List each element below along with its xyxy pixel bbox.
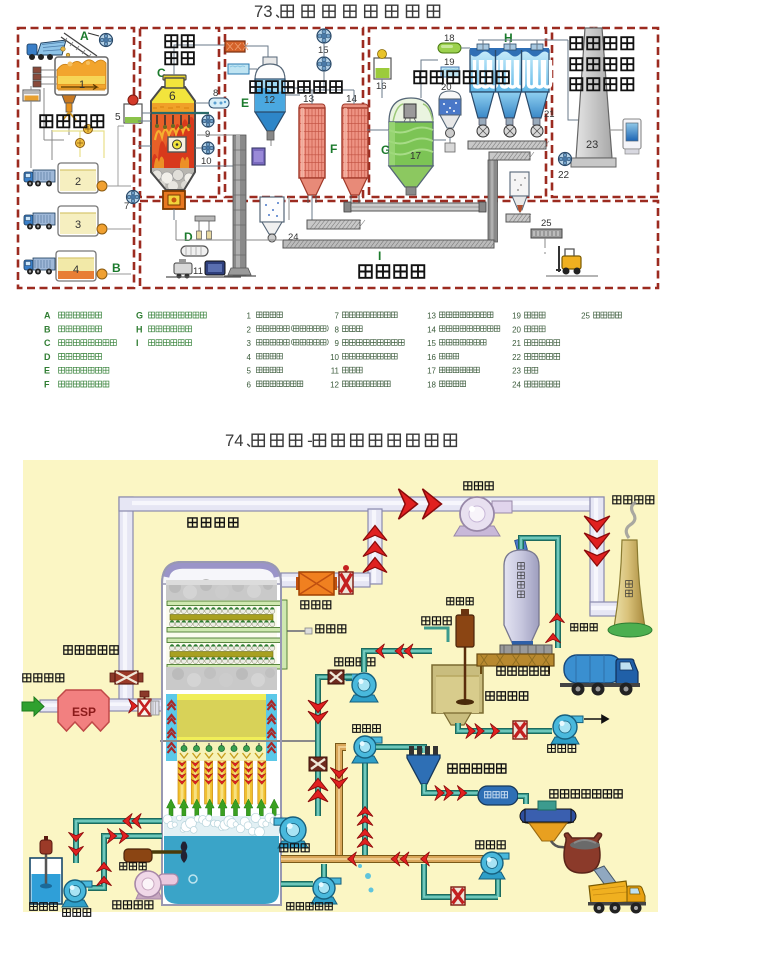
svg-text:5: 5 xyxy=(247,367,252,376)
svg-text:15: 15 xyxy=(318,45,329,56)
svg-text:D: D xyxy=(184,230,193,244)
svg-text:73: 73 xyxy=(254,2,273,21)
svg-text:1: 1 xyxy=(247,312,252,321)
svg-text:I: I xyxy=(378,249,381,263)
svg-text:8: 8 xyxy=(335,325,340,334)
svg-text:B: B xyxy=(112,261,121,275)
svg-text:22: 22 xyxy=(512,353,521,362)
svg-text:6: 6 xyxy=(247,381,252,390)
svg-text:D: D xyxy=(44,352,51,362)
svg-text:18: 18 xyxy=(444,33,455,44)
svg-text:4: 4 xyxy=(247,353,252,362)
svg-text:10: 10 xyxy=(201,156,212,167)
svg-text:B: B xyxy=(44,324,51,334)
svg-text:1: 1 xyxy=(79,79,85,91)
svg-text:6: 6 xyxy=(169,89,176,103)
svg-text:17: 17 xyxy=(410,151,422,162)
svg-text:19: 19 xyxy=(444,57,455,68)
svg-text:14: 14 xyxy=(427,325,436,334)
svg-text:E: E xyxy=(241,96,249,110)
svg-text:2: 2 xyxy=(75,176,81,188)
svg-text:11: 11 xyxy=(331,367,340,376)
svg-text:-: - xyxy=(307,431,313,450)
svg-text:11: 11 xyxy=(193,266,203,277)
svg-text:18: 18 xyxy=(427,381,436,390)
svg-text:24: 24 xyxy=(512,381,521,390)
svg-text:A: A xyxy=(44,311,51,321)
svg-text:H: H xyxy=(504,31,513,45)
svg-text:14: 14 xyxy=(346,94,358,105)
svg-text:22: 22 xyxy=(558,170,570,181)
svg-text:13: 13 xyxy=(303,94,315,105)
svg-text:F: F xyxy=(44,380,50,390)
svg-text:12: 12 xyxy=(330,381,339,390)
svg-text:74: 74 xyxy=(225,431,244,450)
svg-text:20: 20 xyxy=(512,325,521,334)
svg-text:ESP: ESP xyxy=(72,705,96,719)
svg-text:25: 25 xyxy=(541,218,552,229)
svg-text:12: 12 xyxy=(264,95,276,106)
svg-text:7: 7 xyxy=(124,201,129,212)
svg-text:3: 3 xyxy=(75,219,81,231)
svg-text:E: E xyxy=(44,366,50,376)
svg-text:G: G xyxy=(136,311,143,321)
svg-text:16: 16 xyxy=(376,81,387,92)
svg-text:2: 2 xyxy=(247,325,252,334)
svg-text:16: 16 xyxy=(427,353,436,362)
svg-text:23: 23 xyxy=(586,139,598,151)
svg-text:23: 23 xyxy=(512,367,521,376)
svg-text:15: 15 xyxy=(427,339,436,348)
svg-text:9: 9 xyxy=(335,339,340,348)
svg-text:H: H xyxy=(136,324,143,334)
svg-text:21: 21 xyxy=(544,109,555,120)
svg-text:A: A xyxy=(80,29,89,43)
svg-text:17: 17 xyxy=(427,367,436,376)
svg-text:F: F xyxy=(330,142,337,156)
svg-text:13: 13 xyxy=(427,312,436,321)
svg-text:I: I xyxy=(136,338,139,348)
svg-text:21: 21 xyxy=(512,339,521,348)
svg-text:5: 5 xyxy=(115,112,121,123)
svg-text:7: 7 xyxy=(335,312,340,321)
svg-text:8: 8 xyxy=(213,88,218,99)
svg-text:3: 3 xyxy=(247,339,252,348)
svg-text:25: 25 xyxy=(581,312,590,321)
svg-text:10: 10 xyxy=(330,353,339,362)
svg-text:19: 19 xyxy=(512,312,521,321)
svg-text:4: 4 xyxy=(73,264,79,276)
svg-text:C: C xyxy=(44,338,51,348)
